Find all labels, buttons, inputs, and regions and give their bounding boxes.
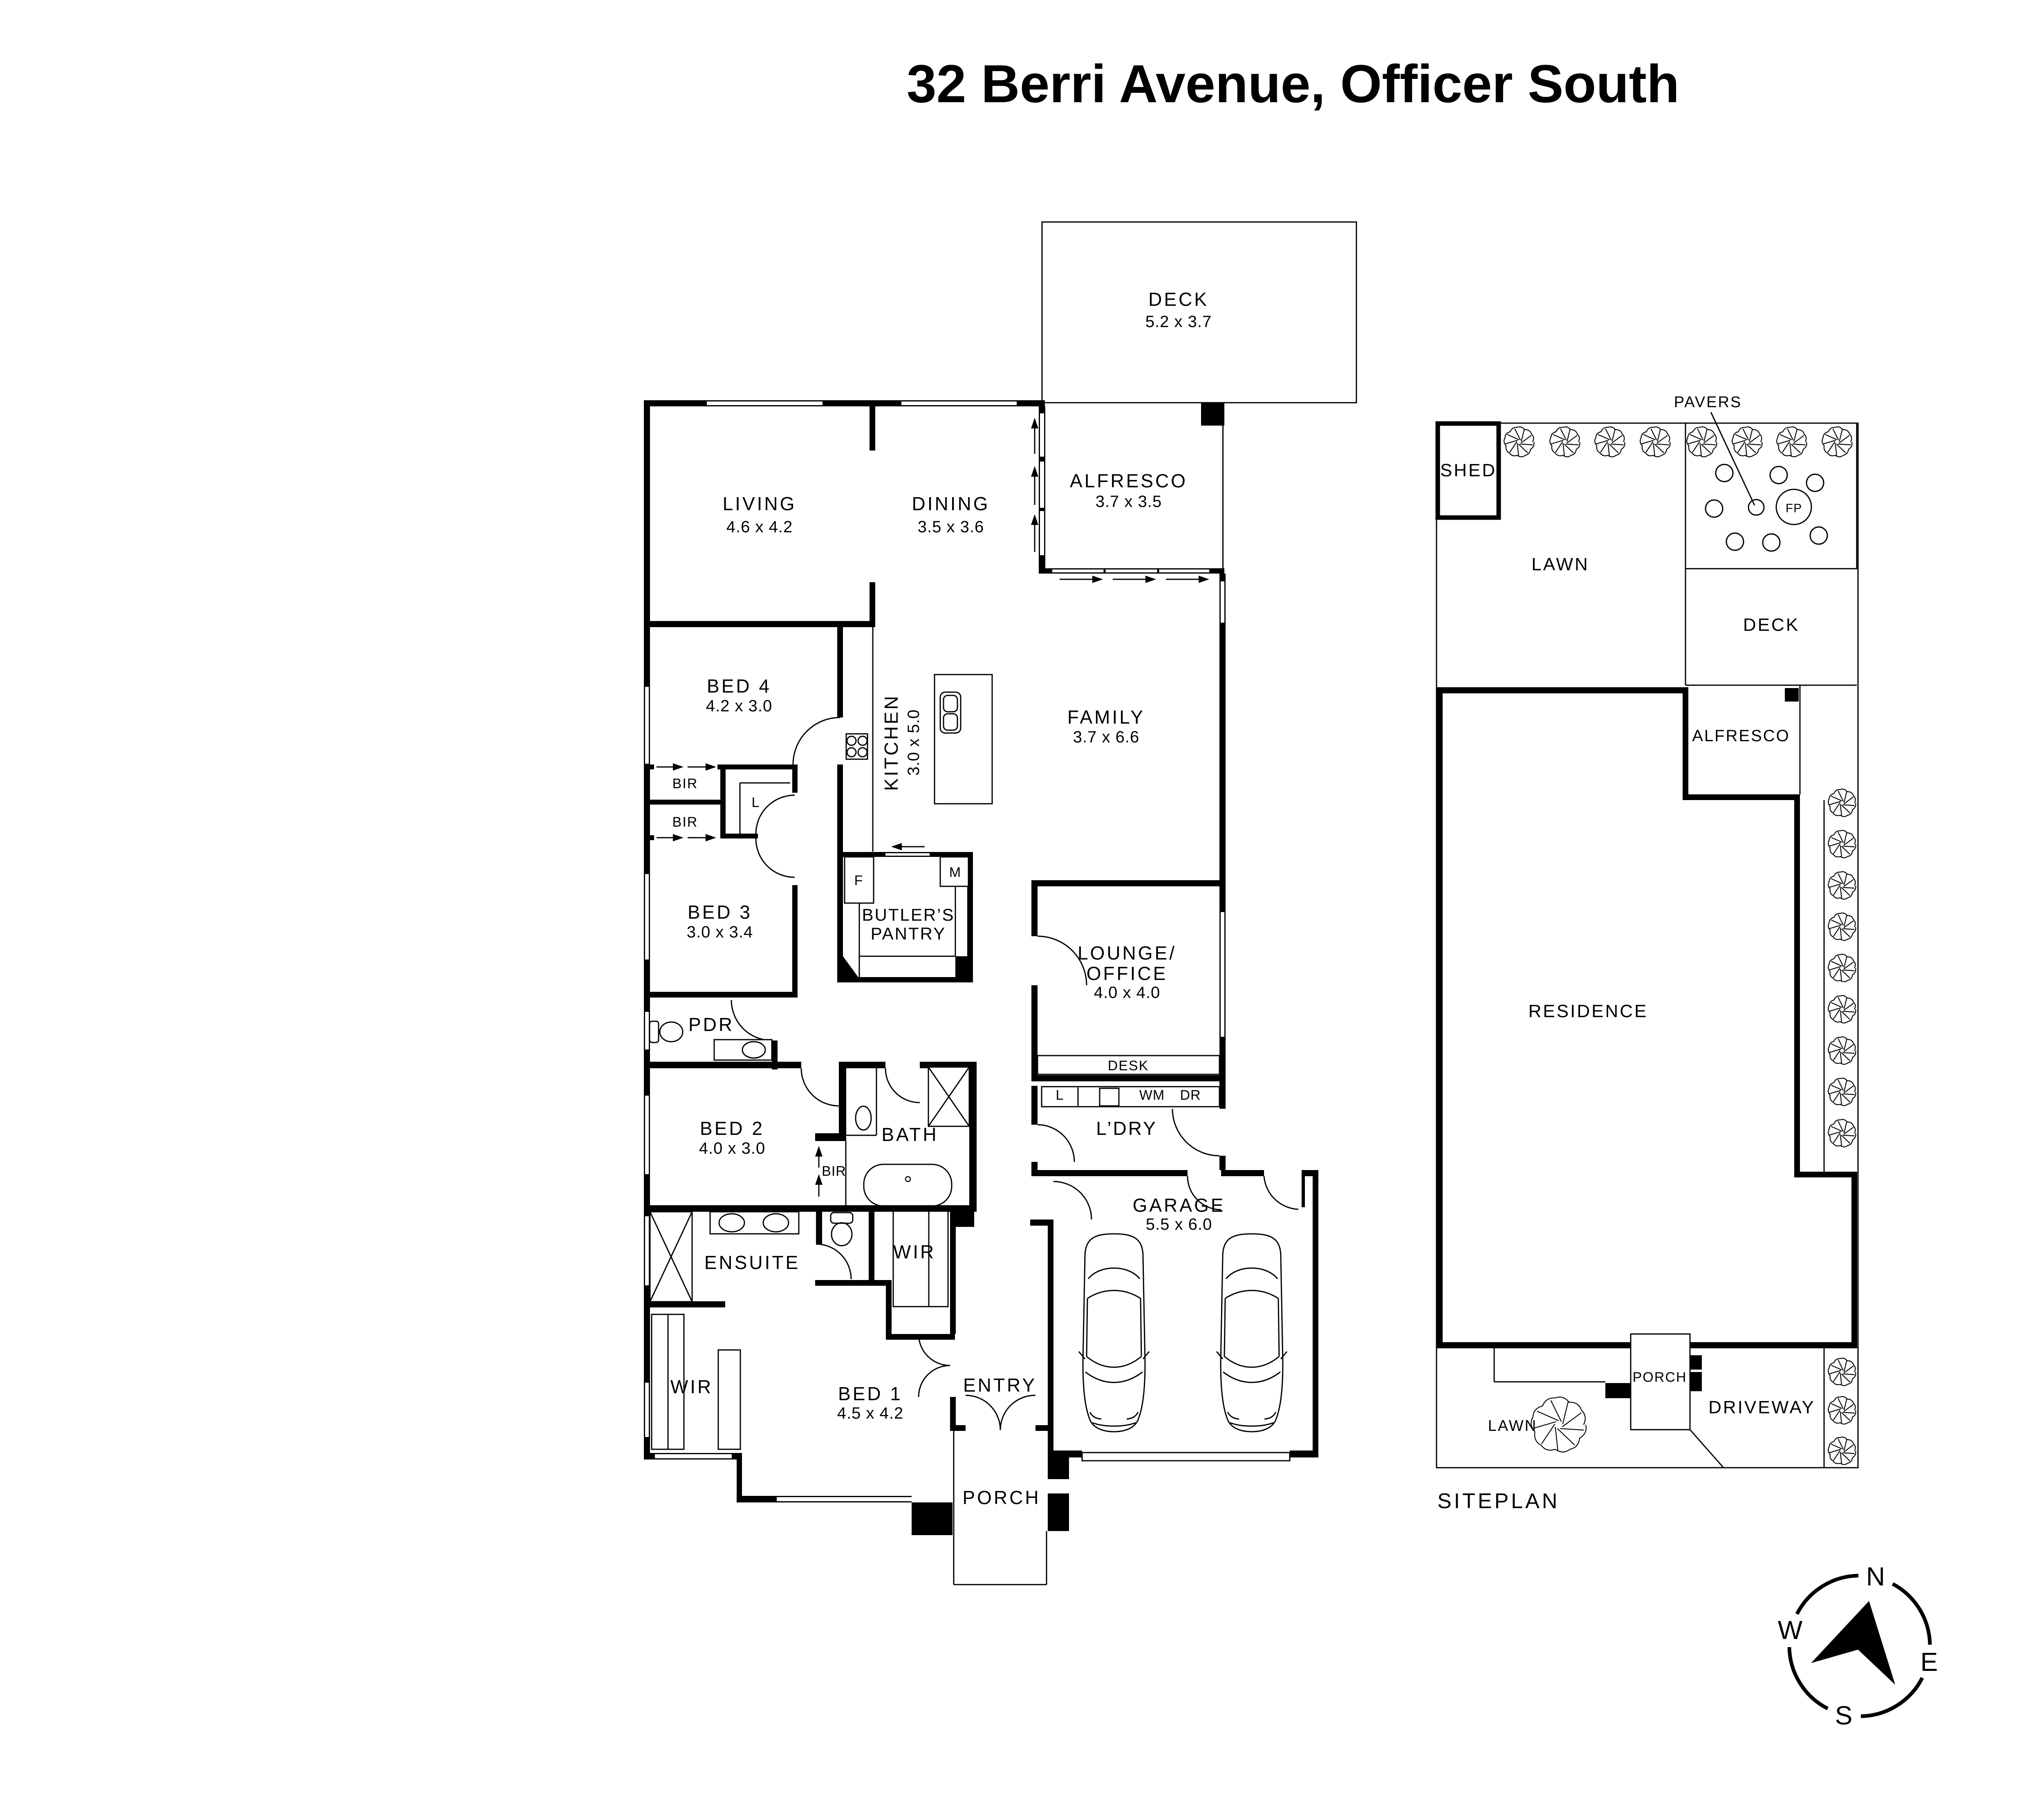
svg-text:ALFRESCO: ALFRESCO [1070,470,1188,491]
svg-text:OFFICE: OFFICE [1087,963,1168,984]
svg-text:FP: FP [1786,502,1802,515]
svg-text:ALFRESCO: ALFRESCO [1692,727,1790,745]
svg-text:3.0 x 3.4: 3.0 x 3.4 [687,923,753,941]
svg-text:DECK: DECK [1148,289,1209,310]
svg-text:DESK: DESK [1108,1058,1149,1074]
svg-text:5.2 x 3.7: 5.2 x 3.7 [1145,313,1212,331]
svg-text:LAWN: LAWN [1531,554,1589,574]
svg-text:PANTRY: PANTRY [871,924,946,943]
svg-text:DR: DR [1180,1087,1201,1103]
svg-text:SHED: SHED [1440,460,1497,480]
svg-text:L: L [752,795,760,810]
svg-text:LOUNGE/: LOUNGE/ [1078,942,1177,964]
svg-text:BIR: BIR [672,776,698,791]
svg-text:WM: WM [1139,1087,1165,1103]
svg-text:DECK: DECK [1743,615,1800,635]
svg-text:BED 3: BED 3 [688,901,752,923]
svg-text:4.2 x 3.0: 4.2 x 3.0 [706,697,772,715]
svg-text:DRIVEWAY: DRIVEWAY [1708,1397,1815,1417]
svg-text:3.5 x 3.6: 3.5 x 3.6 [918,518,984,536]
svg-text:LAWN: LAWN [1488,1417,1537,1435]
svg-text:E: E [1921,1647,1938,1677]
svg-text:ENSUITE: ENSUITE [704,1252,800,1273]
svg-text:PAVERS: PAVERS [1674,394,1742,411]
svg-text:4.0 x 4.0: 4.0 x 4.0 [1094,984,1160,1002]
svg-text:FAMILY: FAMILY [1067,706,1145,728]
svg-text:KITCHEN: KITCHEN [881,694,902,791]
svg-text:PORCH: PORCH [1633,1370,1687,1385]
svg-text:BUTLER’S: BUTLER’S [862,905,955,924]
svg-text:F: F [854,873,863,888]
svg-text:BED 2: BED 2 [700,1118,764,1139]
svg-text:SITEPLAN: SITEPLAN [1437,1489,1560,1513]
svg-text:BIR: BIR [822,1164,846,1179]
svg-text:WIR: WIR [670,1376,713,1397]
svg-text:32 Berri Avenue, Officer South: 32 Berri Avenue, Officer South [907,54,1679,114]
svg-text:BED 4: BED 4 [707,675,771,697]
svg-text:3.7 x 6.6: 3.7 x 6.6 [1073,728,1139,746]
svg-text:W: W [1778,1615,1803,1645]
svg-text:L: L [1056,1087,1064,1103]
svg-text:4.6 x 4.2: 4.6 x 4.2 [726,518,793,536]
svg-text:BIR: BIR [672,814,698,830]
svg-text:GARAGE: GARAGE [1133,1195,1226,1216]
svg-text:LIVING: LIVING [723,493,797,514]
svg-text:3.7 x 3.5: 3.7 x 3.5 [1096,493,1162,511]
svg-text:4.0 x 3.0: 4.0 x 3.0 [699,1139,765,1157]
svg-text:PORCH: PORCH [962,1487,1040,1508]
svg-text:BATH: BATH [881,1124,938,1145]
svg-text:WIR: WIR [893,1241,936,1262]
svg-text:N: N [1866,1562,1885,1591]
svg-text:ENTRY: ENTRY [963,1374,1037,1396]
svg-text:3.0 x 5.0: 3.0 x 5.0 [905,709,923,776]
svg-text:BED 1: BED 1 [838,1383,903,1404]
svg-text:4.5 x 4.2: 4.5 x 4.2 [837,1404,903,1422]
svg-text:RESIDENCE: RESIDENCE [1529,1001,1648,1021]
svg-text:5.5 x 6.0: 5.5 x 6.0 [1146,1215,1212,1233]
svg-text:S: S [1835,1701,1853,1730]
svg-text:L’DRY: L’DRY [1096,1118,1157,1139]
svg-text:DINING: DINING [912,493,990,514]
svg-text:M: M [949,865,961,880]
svg-text:PDR: PDR [688,1014,734,1035]
